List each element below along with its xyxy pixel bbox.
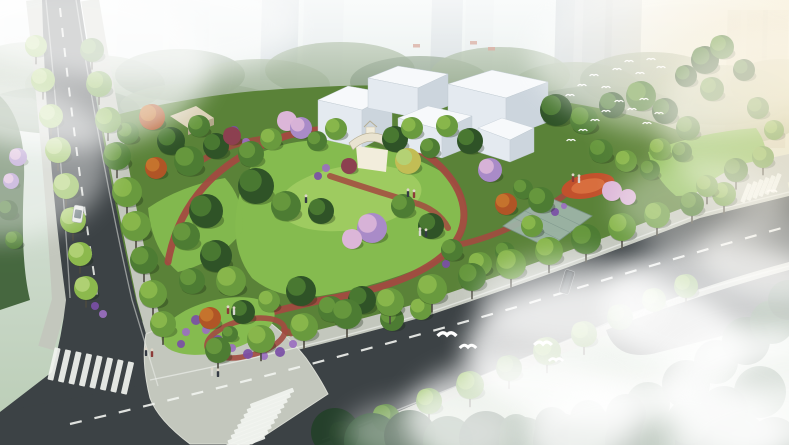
tree-canopy-highlight [239, 142, 255, 158]
flower-patch [561, 203, 567, 209]
tree-canopy-highlight [189, 116, 203, 130]
person [419, 227, 422, 236]
tree-canopy-highlight [272, 192, 291, 211]
flower-patch [322, 164, 330, 172]
tree-canopy-highlight [522, 216, 536, 230]
person [425, 228, 428, 237]
person [151, 348, 154, 357]
tree-canopy-highlight [536, 238, 553, 255]
person-head [578, 174, 581, 177]
person-head [407, 188, 410, 191]
tree-canopy-highlight [326, 119, 340, 133]
person [407, 188, 410, 197]
person-head [305, 194, 308, 197]
tree-canopy-highlight [291, 314, 308, 331]
flower-patch [243, 349, 253, 359]
tree-canopy-highlight [69, 243, 84, 258]
flower-patch [275, 347, 285, 357]
person [211, 367, 214, 376]
tree-canopy-highlight [200, 308, 214, 322]
tree-canopy-highlight [151, 312, 167, 328]
person-body [145, 350, 147, 356]
person-body [407, 191, 409, 197]
egret-bird [534, 342, 552, 345]
tree-canopy-highlight [308, 132, 320, 144]
person-body [305, 197, 307, 203]
tree-canopy-highlight [206, 338, 222, 354]
person-body [233, 309, 235, 315]
tree-canopy-highlight [514, 180, 526, 192]
tree-canopy-highlight [239, 169, 261, 191]
tree-canopy-highlight [333, 300, 352, 319]
person-head [211, 367, 214, 370]
person-head [217, 368, 220, 371]
person [145, 347, 148, 356]
person [233, 306, 236, 315]
person-head [227, 305, 230, 308]
pavilion-body [356, 146, 388, 172]
flower-patch [177, 340, 185, 348]
tree-canopy-highlight [248, 326, 265, 343]
person-body [413, 192, 415, 198]
tree-canopy-highlight [459, 264, 476, 281]
person-body [578, 177, 580, 183]
flower-patch [442, 260, 450, 268]
flower-patch [289, 340, 297, 348]
tree-canopy-highlight [158, 128, 175, 145]
tree-canopy-highlight [278, 112, 290, 124]
person-head [233, 306, 236, 309]
aerial-scene [0, 0, 789, 445]
person-head [145, 347, 148, 350]
person [305, 194, 308, 203]
tree-canopy-highlight [419, 214, 435, 230]
tree-canopy-highlight [146, 158, 160, 172]
tree-canopy-highlight [377, 289, 394, 306]
tree-canopy-highlight [458, 129, 474, 145]
tree-canopy-highlight [180, 269, 196, 285]
tree-canopy-highlight [343, 230, 355, 242]
person-body [419, 230, 421, 236]
person-head [413, 189, 416, 192]
tree-canopy-highlight [418, 275, 437, 294]
person-body [217, 371, 219, 377]
person [217, 368, 220, 377]
person-body [211, 370, 213, 376]
tree-canopy-highlight [342, 159, 352, 169]
flower-patch [182, 328, 190, 336]
flower-patch [91, 302, 99, 310]
person-head [419, 227, 422, 230]
person [227, 305, 230, 314]
tree-canopy-highlight [572, 225, 591, 244]
tree-canopy-highlight [396, 149, 412, 165]
tree-canopy-highlight [217, 267, 236, 286]
tree-canopy-highlight [291, 118, 305, 132]
person-body [227, 308, 229, 314]
tree-canopy-highlight [140, 281, 157, 298]
tree-canopy-highlight [442, 240, 456, 254]
tree-canopy-highlight [122, 212, 141, 231]
flower-patch [99, 310, 107, 318]
tree-canopy-highlight [383, 127, 399, 143]
park-masterplan-rendering [0, 0, 789, 445]
tree-canopy-highlight [261, 129, 275, 143]
egret-bird [438, 333, 457, 336]
egret-bird [460, 345, 477, 348]
tree-canopy-highlight [113, 178, 132, 197]
person-head [425, 228, 428, 231]
tree-canopy-highlight [190, 195, 211, 216]
tree-canopy-highlight [173, 223, 190, 240]
tree-canopy-highlight [223, 327, 233, 337]
mist-cloud [477, 255, 667, 345]
person-body [572, 176, 574, 182]
tree-canopy-highlight [358, 214, 377, 233]
tree-canopy-highlight [204, 134, 220, 150]
person [413, 189, 416, 198]
tree-canopy-highlight [309, 199, 325, 215]
tree-canopy-highlight [224, 128, 235, 139]
tree-canopy-highlight [201, 241, 221, 261]
tree-canopy-highlight [131, 247, 148, 264]
tree-canopy-highlight [75, 277, 90, 292]
tree-canopy-highlight [392, 195, 407, 210]
person-body [425, 231, 427, 237]
tree-canopy-highlight [421, 139, 433, 151]
person-body [151, 351, 153, 357]
egret-bird [549, 359, 563, 361]
tree-canopy-highlight [287, 277, 306, 296]
tree-canopy-highlight [175, 147, 194, 166]
flower-patch [314, 172, 322, 180]
tree-canopy-highlight [437, 116, 451, 130]
person [572, 173, 575, 182]
tree-canopy-highlight [496, 194, 510, 208]
tree-canopy-highlight [402, 118, 416, 132]
tree-canopy-highlight [479, 159, 494, 174]
person [578, 174, 581, 183]
person-head [572, 173, 575, 176]
person-head [151, 348, 154, 351]
tree-canopy-highlight [259, 291, 273, 305]
tree-canopy-highlight [529, 188, 545, 204]
